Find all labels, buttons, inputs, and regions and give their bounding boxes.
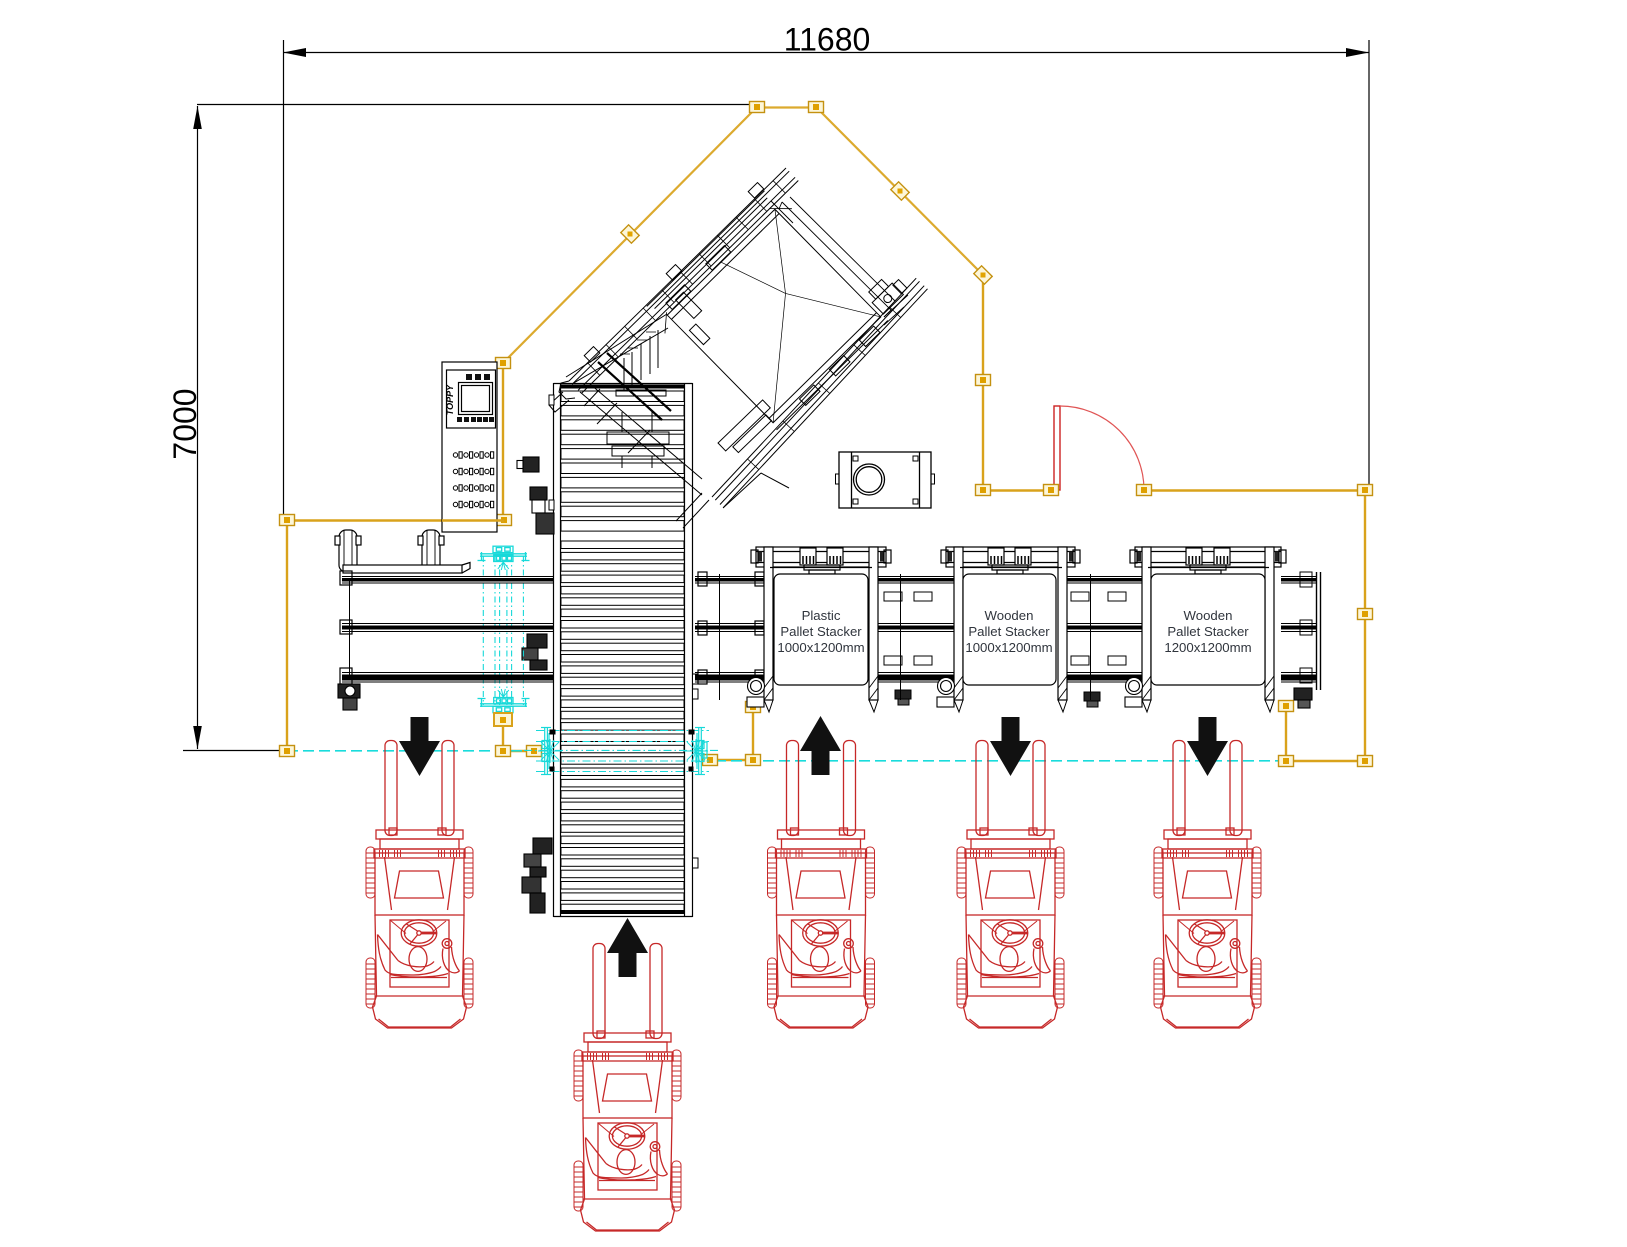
svg-text:1000x1200mm: 1000x1200mm [777,640,864,655]
svg-text:1000x1200mm: 1000x1200mm [965,640,1052,655]
svg-text:7000: 7000 [167,388,203,459]
svg-text:Pallet Stacker: Pallet Stacker [968,624,1050,639]
svg-text:Wooden: Wooden [985,608,1034,623]
svg-text:TOPPY: TOPPY [445,384,455,415]
svg-text:Pallet Stacker: Pallet Stacker [1167,624,1249,639]
svg-text:Wooden: Wooden [1184,608,1233,623]
svg-text:11680: 11680 [784,22,871,58]
svg-text:Pallet Stacker: Pallet Stacker [780,624,862,639]
svg-text:Plastic: Plastic [802,608,841,623]
svg-text:1200x1200mm: 1200x1200mm [1164,640,1251,655]
